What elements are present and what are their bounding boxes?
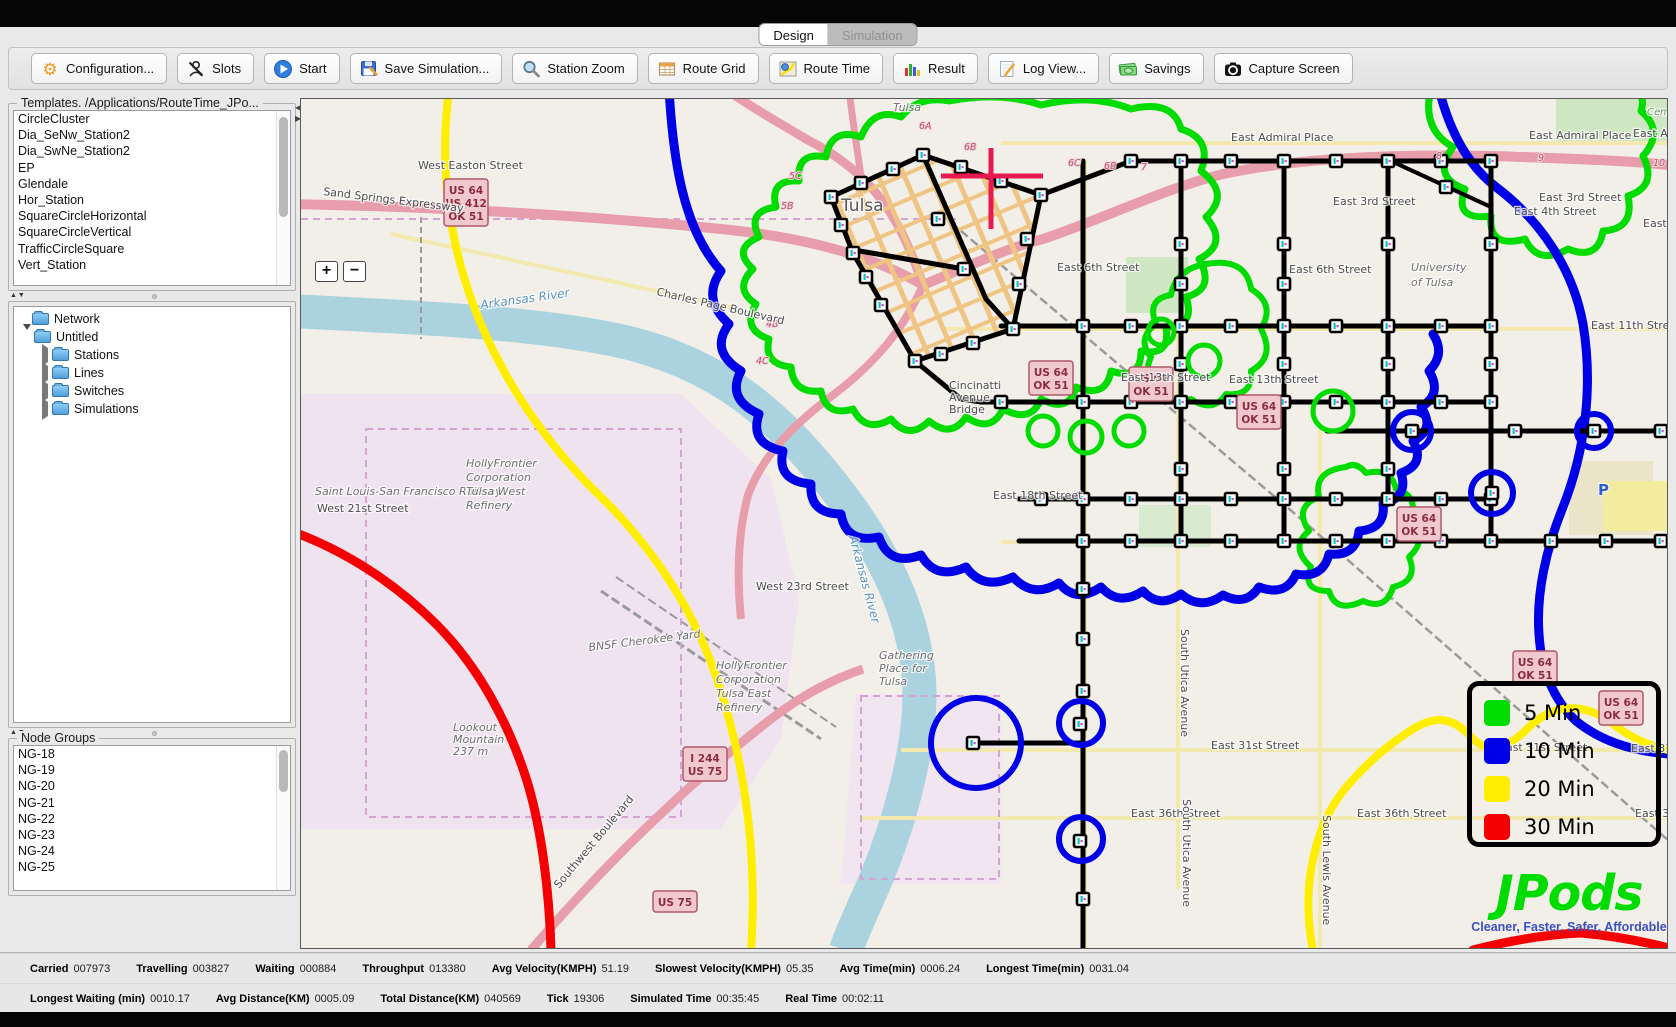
- stat-carried: Carried007973: [30, 963, 110, 975]
- map-label: East 13th Street: [1121, 371, 1211, 384]
- station-marker[interactable]: [875, 299, 887, 311]
- template-list-item[interactable]: SquareCircleVertical: [14, 224, 290, 240]
- template-list-item[interactable]: SquareCircleHorizontal: [14, 208, 290, 224]
- tree-node-label: Stations: [74, 348, 119, 362]
- legend-swatch-5-min: [1484, 700, 1510, 726]
- map-label: Universityof Tulsa: [1411, 261, 1467, 289]
- stat-longest-time-min: Longest Time(min)0031.04: [986, 963, 1129, 975]
- jpods-logo-title: JPods: [1461, 869, 1668, 919]
- map-label: East 6th Street: [1289, 263, 1372, 276]
- toolbar-button-label: Station Zoom: [547, 61, 624, 76]
- station-marker[interactable]: [1485, 155, 1497, 167]
- station-marker[interactable]: [1013, 278, 1025, 290]
- svg-text:OK 51: OK 51: [1401, 526, 1436, 538]
- station-marker[interactable]: [917, 149, 929, 161]
- road-marker: 6B: [1104, 161, 1117, 172]
- toolbar-button-result[interactable]: Result: [893, 53, 978, 84]
- station-marker[interactable]: [1382, 493, 1394, 505]
- station-marker[interactable]: [1330, 396, 1342, 408]
- map-label: East 36th Street: [1357, 807, 1447, 820]
- road-marker: 9: [1538, 153, 1544, 164]
- node-group-list-item[interactable]: NG-24: [14, 843, 290, 859]
- map-label: Tulsa: [840, 196, 884, 216]
- station-marker[interactable]: [1125, 320, 1137, 332]
- toolbar-button-label: Capture Screen: [1249, 61, 1340, 76]
- template-list-item[interactable]: CircleCluster: [14, 111, 290, 127]
- svg-text:US 64: US 64: [1034, 367, 1068, 379]
- log-icon: [997, 59, 1017, 79]
- station-marker[interactable]: [1545, 535, 1557, 547]
- station-marker[interactable]: [909, 355, 921, 367]
- tree-node-label: Untitled: [56, 330, 98, 344]
- station-marker[interactable]: [1382, 358, 1394, 370]
- tree-node-label: Switches: [74, 384, 124, 398]
- station-marker[interactable]: [1175, 463, 1187, 475]
- legend-label: 30 Min: [1524, 815, 1595, 839]
- map-label: East 6th Street: [1057, 261, 1140, 274]
- node-group-list-item[interactable]: NG-22: [14, 811, 290, 827]
- station-marker[interactable]: [1175, 278, 1187, 290]
- tree-node-switches[interactable]: Switches: [14, 382, 290, 400]
- highway-shield: US 75: [653, 891, 697, 912]
- station-marker[interactable]: [1021, 233, 1033, 245]
- station-marker[interactable]: [1175, 320, 1187, 332]
- map-label: East 4th Street: [1514, 205, 1597, 218]
- stat-value: 000884: [300, 963, 337, 975]
- stat-throughput: Throughput013380: [362, 963, 465, 975]
- tree-node-simulations[interactable]: Simulations: [14, 400, 290, 418]
- menu-bar: [0, 0, 1676, 27]
- station-marker[interactable]: [1278, 493, 1290, 505]
- map-label: West Easton Street: [418, 159, 524, 172]
- tree-node-lines[interactable]: Lines: [14, 364, 290, 382]
- collapse-arrow-icon[interactable]: [23, 324, 31, 344]
- jpods-logo: JPods Cleaner, Faster, Safer, Affordable: [1461, 869, 1668, 934]
- legend-item: 30 Min: [1484, 808, 1656, 846]
- map-label: South Lewis Avenue: [1320, 815, 1333, 926]
- toolbar-button-log-view[interactable]: Log View...: [988, 53, 1099, 84]
- highway-shield: US 64OK 51: [1513, 651, 1557, 685]
- stat-waiting: Waiting000884: [255, 963, 336, 975]
- node-group-list-item[interactable]: NG-19: [14, 762, 290, 778]
- svg-text:I 244: I 244: [690, 753, 719, 765]
- station-marker[interactable]: [1485, 238, 1497, 250]
- station-marker[interactable]: [1330, 320, 1342, 332]
- svg-text:US 64: US 64: [1518, 657, 1552, 669]
- network-tree[interactable]: NetworkUntitledStationsLinesSwitchesSimu…: [13, 306, 291, 723]
- toolbar-button-label: Start: [299, 61, 326, 76]
- building-area: [1603, 481, 1668, 531]
- station-marker[interactable]: [1077, 893, 1089, 905]
- node-group-list-item[interactable]: NG-23: [14, 827, 290, 843]
- svg-text:US 64: US 64: [1402, 513, 1436, 525]
- stat-value: 00:02:11: [842, 993, 884, 1005]
- road-marker: 7: [1141, 162, 1147, 173]
- station-marker[interactable]: [1330, 155, 1342, 167]
- highway-shield: US 64OK 51: [1029, 361, 1073, 395]
- station-marker[interactable]: [1382, 396, 1394, 408]
- station-marker[interactable]: [1225, 396, 1237, 408]
- station-marker[interactable]: [1655, 535, 1667, 547]
- stat-tick: Tick19306: [547, 993, 604, 1005]
- map-zoom-in-button[interactable]: +: [315, 261, 338, 282]
- folder-icon: [52, 385, 69, 397]
- station-marker[interactable]: [1225, 320, 1237, 332]
- svg-text:⚙: ⚙: [42, 60, 57, 79]
- map-label: East 11th Street: [1591, 319, 1668, 332]
- money-icon: [1118, 59, 1138, 79]
- station-marker[interactable]: [1225, 155, 1237, 167]
- node-group-list-item[interactable]: NG-20: [14, 778, 290, 794]
- road-marker: 6C: [1068, 158, 1081, 169]
- legend-item: 5 Min: [1484, 694, 1656, 732]
- station-marker[interactable]: [1330, 493, 1342, 505]
- stat-value: 0010.17: [150, 993, 190, 1005]
- templates-list[interactable]: CircleClusterDia_SeNw_Station2Dia_SwNe_S…: [13, 110, 291, 286]
- stat-value: 00:35:45: [716, 993, 759, 1005]
- toolbar-button-label: Route Grid: [683, 61, 746, 76]
- tree-node-stations[interactable]: Stations: [14, 346, 290, 364]
- templates-panel-title: Templates. /Applications/RouteTime_JPo..…: [17, 96, 263, 110]
- station-marker[interactable]: [1278, 320, 1290, 332]
- station-marker[interactable]: [855, 177, 867, 189]
- view-tab-group[interactable]: Design Simulation: [759, 24, 916, 45]
- station-marker[interactable]: [1485, 396, 1497, 408]
- station-marker[interactable]: [1125, 493, 1137, 505]
- toolbar-button-station-zoom[interactable]: Station Zoom: [512, 53, 637, 84]
- green-range-circle: [1028, 416, 1058, 446]
- station-marker[interactable]: [1440, 181, 1452, 193]
- template-list-item[interactable]: EP: [14, 160, 290, 176]
- station-marker[interactable]: [967, 737, 979, 749]
- play-icon: [273, 59, 293, 79]
- station-marker[interactable]: [887, 163, 899, 175]
- map-label: East 4th Place: [1643, 217, 1668, 230]
- road-marker: 8: [1436, 151, 1442, 162]
- highway-shield: US 64OK 51: [1237, 395, 1281, 429]
- tree-node-label: Lines: [74, 366, 104, 380]
- tree-node-network[interactable]: Network: [14, 310, 290, 328]
- map-label: West 23rd Street: [756, 580, 849, 593]
- map-canvas[interactable]: US 64US 412OK 51US 64OK 51US 64OK 51US 6…: [300, 98, 1668, 949]
- station-marker[interactable]: [1278, 278, 1290, 290]
- svg-text:OK 51: OK 51: [1133, 386, 1168, 398]
- route-time-icon: [778, 59, 798, 79]
- templates-scrollbar[interactable]: [276, 111, 290, 285]
- stat-value: 0006.24: [920, 963, 960, 975]
- station-marker[interactable]: [1077, 396, 1089, 408]
- station-marker[interactable]: [995, 396, 1007, 408]
- stat-value: 51.19: [602, 963, 630, 975]
- station-marker[interactable]: [1077, 535, 1089, 547]
- folder-icon: [52, 367, 69, 379]
- node-groups-scrollbar[interactable]: [276, 746, 290, 890]
- station-marker[interactable]: [1435, 493, 1447, 505]
- status-row-1: Carried007973Travelling003827Waiting0008…: [0, 953, 1676, 983]
- road-marker: 6B: [964, 142, 977, 153]
- station-marker[interactable]: [1382, 463, 1394, 475]
- station-marker[interactable]: [1509, 425, 1521, 437]
- expand-arrow-icon[interactable]: [42, 398, 48, 420]
- station-marker[interactable]: [1435, 320, 1447, 332]
- toolbar: ⚙Configuration...SlotsStartSave Simulati…: [8, 47, 1668, 90]
- legend-swatch-20-min: [1484, 776, 1510, 802]
- toolbar-button-label: Log View...: [1023, 61, 1086, 76]
- station-marker[interactable]: [935, 348, 947, 360]
- folder-icon: [52, 403, 69, 415]
- station-marker[interactable]: [860, 271, 872, 283]
- map-zoom-out-button[interactable]: −: [343, 261, 366, 282]
- legend-item: 20 Min: [1484, 770, 1656, 808]
- map-label: East 36th Street: [1131, 807, 1221, 820]
- station-marker[interactable]: [1225, 493, 1237, 505]
- stat-value: 0031.04: [1089, 963, 1129, 975]
- templates-panel: Templates. /Applications/RouteTime_JPo..…: [8, 103, 296, 291]
- save-icon: [359, 59, 379, 79]
- tree-node-label: Simulations: [74, 402, 139, 416]
- gear-icon: ⚙: [40, 59, 60, 79]
- station-marker[interactable]: [1278, 238, 1290, 250]
- status-row-2: Longest Waiting (min)0010.17Avg Distance…: [0, 983, 1676, 1013]
- stat-total-distance-km: Total Distance(KM)040569: [380, 993, 521, 1005]
- station-marker[interactable]: [1074, 835, 1086, 847]
- template-list-item[interactable]: TrafficCircleSquare: [14, 241, 290, 257]
- map-label: East Admiral Place: [1231, 131, 1334, 144]
- template-list-item[interactable]: Dia_SwNe_Station2: [14, 143, 290, 159]
- tree-node-label: Network: [54, 312, 100, 326]
- map-label: CincinattiAvenueBridge: [949, 379, 1001, 416]
- stat-value: 040569: [484, 993, 521, 1005]
- station-marker[interactable]: [932, 213, 944, 225]
- map-label: P: [1598, 481, 1609, 499]
- network-tree-panel: NetworkUntitledStationsLinesSwitchesSimu…: [8, 301, 296, 728]
- station-marker[interactable]: [835, 219, 847, 231]
- folder-icon: [52, 349, 69, 361]
- legend-swatch-30-min: [1484, 814, 1510, 840]
- map-label: Arkansas River: [478, 285, 571, 312]
- map-label: East 31st Street: [1211, 739, 1300, 752]
- toolbar-button-label: Configuration...: [66, 61, 154, 76]
- folder-icon: [34, 331, 51, 343]
- highway-shield: I 244US 75: [683, 747, 727, 781]
- road-marker: 5C: [789, 171, 802, 182]
- station-marker[interactable]: [1175, 358, 1187, 370]
- toolbar-button-configuration[interactable]: ⚙Configuration...: [31, 53, 167, 84]
- stat-avg-velocity-kmph: Avg Velocity(KMPH)51.19: [492, 963, 629, 975]
- station-marker[interactable]: [1175, 396, 1187, 408]
- toolbar-button-label: Slots: [212, 61, 241, 76]
- station-marker[interactable]: [1278, 155, 1290, 167]
- bar-chart-icon: [902, 59, 922, 79]
- road-marker: 10: [1653, 158, 1665, 169]
- station-marker[interactable]: [1382, 155, 1394, 167]
- station-marker[interactable]: [1175, 155, 1187, 167]
- toolbar-button-slots[interactable]: Slots: [177, 53, 254, 84]
- map-label: East 18th Street: [993, 489, 1083, 502]
- station-marker[interactable]: [1406, 425, 1418, 437]
- grid-icon: [657, 59, 677, 79]
- station-marker[interactable]: [1485, 535, 1497, 547]
- station-marker[interactable]: [1588, 425, 1600, 437]
- highway-shield: US 64OK 51: [1397, 507, 1441, 541]
- station-marker[interactable]: [1077, 320, 1089, 332]
- station-marker[interactable]: [967, 337, 979, 349]
- node-group-list-item[interactable]: NG-21: [14, 795, 290, 811]
- station-marker[interactable]: [1278, 358, 1290, 370]
- magnifier-icon: [521, 59, 541, 79]
- legend-item: 10 Min: [1484, 732, 1656, 770]
- station-marker[interactable]: [1485, 320, 1497, 332]
- station-marker[interactable]: [1225, 535, 1237, 547]
- station-marker[interactable]: [1655, 425, 1667, 437]
- jpods-logo-tagline: Cleaner, Faster, Safer, Affordable: [1461, 920, 1668, 934]
- node-groups-panel: Node Groups NG-18NG-19NG-20NG-21NG-22NG-…: [8, 738, 296, 896]
- station-marker[interactable]: [1382, 320, 1394, 332]
- stat-avg-distance-km: Avg Distance(KM)0005.09: [216, 993, 354, 1005]
- tree-node-untitled[interactable]: Untitled: [14, 328, 290, 346]
- station-marker[interactable]: [1600, 535, 1612, 547]
- map-label: West 21st Street: [317, 502, 409, 515]
- stat-value: 003827: [193, 963, 230, 975]
- toolbar-button-label: Route Time: [804, 61, 870, 76]
- legend-label: 5 Min: [1524, 701, 1581, 725]
- toolbar-button-start[interactable]: Start: [264, 53, 339, 84]
- station-marker[interactable]: [825, 191, 837, 203]
- route-time-legend: 5 Min10 Min20 Min30 Min: [1467, 681, 1661, 847]
- toolbar-button-savings[interactable]: Savings: [1109, 53, 1203, 84]
- legend-label: 10 Min: [1524, 739, 1595, 763]
- toolbar-button-route-grid[interactable]: Route Grid: [648, 53, 759, 84]
- station-marker[interactable]: [1175, 493, 1187, 505]
- station-marker[interactable]: [1278, 463, 1290, 475]
- node-group-list-item[interactable]: NG-25: [14, 859, 290, 875]
- station-marker[interactable]: [958, 263, 970, 275]
- stat-value: 013380: [429, 963, 466, 975]
- stat-value: 19306: [574, 993, 605, 1005]
- template-list-item[interactable]: Vert_Station: [14, 257, 290, 273]
- legend-swatch-10-min: [1484, 738, 1510, 764]
- toolbar-button-label: Result: [928, 61, 965, 76]
- station-marker[interactable]: [1007, 323, 1019, 335]
- template-list-item[interactable]: Dia_SeNw_Station2: [14, 127, 290, 143]
- stat-value: 0005.09: [315, 993, 355, 1005]
- toolbar-button-label: Save Simulation...: [385, 61, 490, 76]
- tab-simulation[interactable]: Simulation: [828, 24, 917, 45]
- toolbar-button-capture-screen[interactable]: Capture Screen: [1214, 53, 1353, 84]
- station-marker[interactable]: [1125, 155, 1137, 167]
- map-label: East 3rd Street: [1333, 195, 1416, 208]
- station-marker[interactable]: [1074, 718, 1086, 730]
- node-group-list-item[interactable]: NG-18: [14, 746, 290, 762]
- svg-text:US 64: US 64: [1242, 401, 1276, 413]
- status-bar: Carried007973Travelling003827Waiting0008…: [0, 952, 1676, 1012]
- bottom-chrome-bar: [0, 1012, 1676, 1027]
- toolbar-button-route-time[interactable]: Route Time: [769, 53, 883, 84]
- map-graphics: US 64US 412OK 51US 64OK 51US 64OK 51US 6…: [301, 99, 1668, 949]
- svg-text:OK 51: OK 51: [1033, 380, 1068, 392]
- svg-text:OK 51: OK 51: [1241, 414, 1276, 426]
- station-marker[interactable]: [1077, 583, 1089, 595]
- map-label: East Admiral Place: [1529, 129, 1632, 142]
- road-marker: 4C: [756, 356, 769, 367]
- station-marker[interactable]: [1330, 535, 1342, 547]
- stat-slowest-velocity-kmph: Slowest Velocity(KMPH)05.35: [655, 963, 813, 975]
- stat-value: 007973: [74, 963, 111, 975]
- stat-real-time: Real Time00:02:11: [785, 993, 884, 1005]
- stat-simulated-time: Simulated Time00:35:45: [630, 993, 759, 1005]
- splitter-templates-network[interactable]: ▲▼: [8, 291, 296, 301]
- toolbar-button-save-simulation[interactable]: Save Simulation...: [350, 53, 503, 84]
- svg-text:US 75: US 75: [658, 897, 692, 909]
- road-marker: 6A: [919, 121, 932, 132]
- station-marker[interactable]: [1035, 189, 1047, 201]
- station-marker[interactable]: [847, 247, 859, 259]
- map-label: South Utica Avenue: [1178, 629, 1191, 737]
- toolbar-button-label: Savings: [1144, 61, 1190, 76]
- map-label: Cemetery: [1647, 107, 1668, 118]
- template-list-item[interactable]: Hor_Station: [14, 192, 290, 208]
- station-marker[interactable]: [1125, 535, 1137, 547]
- svg-text:US 75: US 75: [688, 766, 722, 778]
- stat-travelling: Travelling003827: [136, 963, 229, 975]
- map-label: South Utica Avenue: [1180, 799, 1193, 907]
- station-marker[interactable]: [1382, 535, 1394, 547]
- stat-longest-waiting-min: Longest Waiting (min)0010.17: [30, 993, 190, 1005]
- green-range-circle: [1114, 416, 1144, 446]
- folder-icon: [32, 313, 49, 325]
- slots-icon: [186, 59, 206, 79]
- map-label: East 3rd Street: [1539, 191, 1622, 204]
- camera-icon: [1223, 59, 1243, 79]
- tab-design[interactable]: Design: [759, 24, 827, 45]
- map-label: Tulsa: [893, 101, 921, 114]
- stat-value: 05.35: [786, 963, 814, 975]
- station-marker[interactable]: [1278, 535, 1290, 547]
- station-marker[interactable]: [1077, 633, 1089, 645]
- station-marker[interactable]: [1382, 238, 1394, 250]
- template-list-item[interactable]: Glendale: [14, 176, 290, 192]
- svg-text:US 64: US 64: [449, 185, 483, 197]
- map-label: East 13th Street: [1229, 373, 1319, 386]
- map-label: East Admiral Place: [1633, 127, 1668, 140]
- road-marker: 5B: [781, 201, 794, 212]
- station-marker[interactable]: [1175, 535, 1187, 547]
- node-groups-panel-title: Node Groups: [17, 731, 99, 745]
- station-marker[interactable]: [1175, 238, 1187, 250]
- stat-avg-time-min: Avg Time(min)0006.24: [840, 963, 961, 975]
- station-marker[interactable]: [955, 161, 967, 173]
- station-marker[interactable]: [1486, 487, 1498, 499]
- node-groups-list[interactable]: NG-18NG-19NG-20NG-21NG-22NG-23NG-24NG-25: [13, 745, 291, 891]
- station-marker[interactable]: [1435, 396, 1447, 408]
- legend-label: 20 Min: [1524, 777, 1595, 801]
- station-marker[interactable]: [1077, 685, 1089, 697]
- station-marker[interactable]: [1485, 358, 1497, 370]
